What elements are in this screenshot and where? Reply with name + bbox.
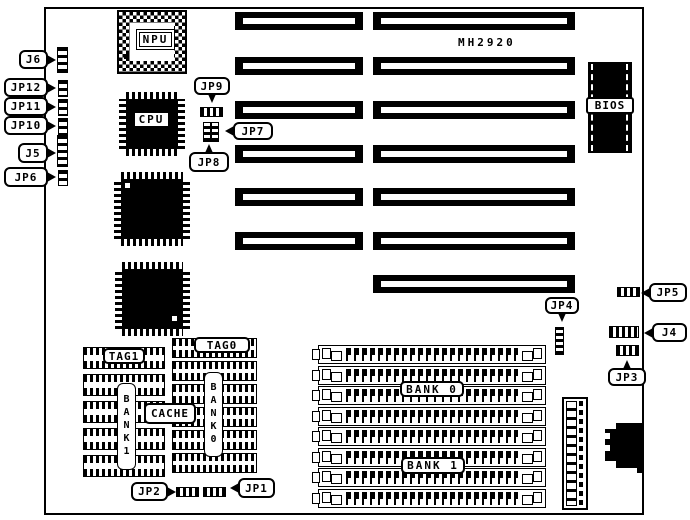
simm-socket-7-hook-right bbox=[522, 474, 533, 484]
jumper-jp7-jp8-b bbox=[211, 122, 219, 142]
isa-slot-long-3-stripe bbox=[381, 107, 567, 113]
qfp1-pins-left bbox=[114, 179, 121, 239]
callout-jp11: JP11 bbox=[4, 97, 48, 116]
simm-socket-8-tab bbox=[312, 493, 320, 504]
simm-socket-1 bbox=[318, 345, 546, 364]
simm-socket-2-hook-left bbox=[331, 372, 342, 382]
isa-slot-long-6-stripe bbox=[381, 238, 567, 244]
callout-j5-pointer bbox=[47, 148, 56, 158]
simm-socket-2-contacts-top bbox=[346, 369, 518, 376]
simm-socket-3-latch-right bbox=[533, 389, 542, 400]
board-model-text: MH2920 bbox=[458, 36, 516, 49]
simm-socket-4-hook-left bbox=[331, 413, 342, 423]
callout-jp10: JP10 bbox=[4, 116, 48, 135]
callout-jp7: JP7 bbox=[233, 122, 273, 140]
npu-label: NPU bbox=[139, 32, 172, 47]
simm-socket-2-hook-right bbox=[522, 372, 533, 382]
cpu-pins-left bbox=[119, 99, 126, 149]
simm-socket-1-latch-right bbox=[533, 348, 542, 359]
simm-socket-8-latch-left bbox=[322, 492, 331, 503]
simm-socket-6-tab bbox=[312, 452, 320, 463]
callout-jp5-text: JP5 bbox=[657, 286, 680, 299]
callout-j4-text: J4 bbox=[662, 326, 677, 339]
isa-slot-short-6-stripe bbox=[243, 238, 355, 244]
callout-jp9-pointer bbox=[208, 94, 216, 103]
edge-connector-jp10 bbox=[58, 118, 68, 135]
callout-jp1-pointer bbox=[230, 483, 239, 493]
isa-slot-short-1-stripe bbox=[243, 18, 355, 24]
callout-jp11-text: JP11 bbox=[11, 100, 42, 113]
edge-connector-jp12 bbox=[58, 80, 68, 97]
jumper-jp3 bbox=[616, 345, 639, 356]
qfp2-pins-right bbox=[183, 269, 190, 329]
callout-j6-pointer bbox=[47, 55, 56, 65]
callout-jp3-pointer bbox=[623, 360, 631, 369]
simm-bank0-label: BANK 0 bbox=[400, 381, 464, 397]
callout-jp9: JP9 bbox=[194, 77, 230, 95]
isa-slot-long-2 bbox=[373, 57, 575, 75]
isa-slot-long-2-stripe bbox=[381, 63, 567, 69]
callout-jp12-pointer bbox=[47, 83, 56, 93]
bios-label: BIOS bbox=[586, 97, 634, 114]
simm-socket-7-latch-right bbox=[533, 471, 542, 482]
edge-connector-j5 bbox=[57, 135, 68, 167]
qfp2-pin1-dot bbox=[172, 316, 177, 321]
qfp2-pins-top bbox=[122, 262, 183, 269]
power-connector-pins bbox=[566, 401, 577, 506]
callout-jp8-text: JP8 bbox=[198, 156, 221, 169]
simm-socket-5-contacts-bottom bbox=[346, 437, 518, 443]
simm-socket-4-contacts-bottom bbox=[346, 417, 518, 423]
qfp2-pins-bottom bbox=[122, 329, 183, 336]
isa-slot-short-2-stripe bbox=[243, 63, 355, 69]
simm-socket-1-contacts-top bbox=[346, 348, 518, 355]
jumper-jp7-jp8-a bbox=[203, 122, 211, 142]
callout-jp7-pointer bbox=[225, 126, 234, 136]
simm-socket-2-latch-right bbox=[533, 369, 542, 380]
edge-connector-j6 bbox=[57, 47, 68, 73]
simm-socket-2-latch-left bbox=[322, 369, 331, 380]
cache-label: CACHE bbox=[144, 403, 196, 424]
power-connector bbox=[562, 397, 588, 510]
callout-jp4: JP4 bbox=[545, 297, 579, 314]
simm-socket-6-hook-right bbox=[522, 454, 533, 464]
callout-jp6-text: JP6 bbox=[15, 171, 38, 184]
npu-pin1-dot bbox=[124, 54, 129, 59]
callout-jp9-text: JP9 bbox=[201, 80, 224, 93]
qfp1-pin1-dot bbox=[125, 183, 130, 188]
isa-slot-long-3 bbox=[373, 101, 575, 119]
jumper-j4 bbox=[609, 326, 639, 338]
jumper-jp4 bbox=[555, 327, 564, 355]
isa-slot-short-2 bbox=[235, 57, 363, 75]
simm-socket-7-tab bbox=[312, 472, 320, 483]
simm-socket-7-latch-left bbox=[322, 471, 331, 482]
simm-socket-7-contacts-bottom bbox=[346, 478, 518, 484]
isa-slot-long-6 bbox=[373, 232, 575, 250]
simm-socket-1-tab bbox=[312, 349, 320, 360]
qfp1-pins-right bbox=[183, 179, 190, 239]
simm-socket-6-latch-left bbox=[322, 451, 331, 462]
simm-socket-3-hook-left bbox=[331, 392, 342, 402]
isa-slot-short-3-stripe bbox=[243, 107, 355, 113]
callout-jp2: JP2 bbox=[131, 482, 168, 501]
simm-socket-3-hook-right bbox=[522, 392, 533, 402]
isa-slot-long-5 bbox=[373, 188, 575, 206]
callout-jp8: JP8 bbox=[189, 152, 229, 172]
simm-socket-8-latch-right bbox=[533, 492, 542, 503]
callout-jp2-text: JP2 bbox=[138, 485, 161, 498]
jumper-jp2 bbox=[176, 487, 199, 497]
callout-jp4-text: JP4 bbox=[551, 299, 574, 312]
isa-slot-short-4 bbox=[235, 145, 363, 163]
callout-j4: J4 bbox=[652, 323, 687, 342]
keyboard-din-connector bbox=[616, 423, 644, 468]
simm-socket-8-contacts-bottom bbox=[346, 499, 518, 505]
simm-socket-1-contacts-bottom bbox=[346, 355, 518, 361]
isa-slot-short-6 bbox=[235, 232, 363, 250]
edge-connector-jp11 bbox=[58, 99, 68, 116]
bank0-vertical-label: BANK0 bbox=[204, 372, 223, 457]
tag1-label: TAG1 bbox=[103, 348, 145, 364]
callout-j5-text: J5 bbox=[25, 147, 40, 160]
jumper-jp5 bbox=[617, 287, 640, 297]
callout-j4-pointer bbox=[644, 328, 653, 338]
callout-jp11-pointer bbox=[47, 102, 56, 112]
isa-slot-short-5-stripe bbox=[243, 194, 355, 200]
jumper-jp1 bbox=[203, 487, 226, 497]
callout-jp2-pointer bbox=[167, 487, 176, 497]
tag0-label: TAG0 bbox=[194, 337, 250, 353]
keyboard-din-connector-step bbox=[637, 468, 644, 473]
callout-j6: J6 bbox=[19, 50, 48, 69]
cpu-pins-bottom bbox=[126, 149, 178, 156]
simm-socket-3-tab bbox=[312, 390, 320, 401]
cpu-pins-top bbox=[126, 92, 178, 99]
callout-jp3: JP3 bbox=[608, 368, 646, 386]
simm-socket-4-contacts-top bbox=[346, 410, 518, 417]
callout-jp5-pointer bbox=[641, 288, 650, 298]
simm-socket-2-tab bbox=[312, 370, 320, 381]
simm-socket-4-tab bbox=[312, 411, 320, 422]
power-connector-contacts bbox=[579, 401, 583, 506]
cpu-label: CPU bbox=[134, 112, 169, 127]
isa-slot-long-1 bbox=[373, 12, 575, 30]
qfp1-pins-bottom bbox=[121, 239, 183, 246]
cpu-pins-right bbox=[178, 99, 185, 149]
simm-socket-4-latch-right bbox=[533, 410, 542, 421]
simm-socket-6-latch-right bbox=[533, 451, 542, 462]
isa-slot-short-3 bbox=[235, 101, 363, 119]
simm-socket-8-contacts-top bbox=[346, 492, 518, 499]
keyboard-din-notch-1 bbox=[605, 433, 610, 439]
simm-socket-8-hook-left bbox=[331, 495, 342, 505]
isa-slot-long-4 bbox=[373, 145, 575, 163]
callout-jp12-text: JP12 bbox=[11, 81, 42, 94]
simm-socket-4-latch-left bbox=[322, 410, 331, 421]
simm-bank1-label: BANK 1 bbox=[401, 457, 465, 474]
simm-socket-1-hook-right bbox=[522, 351, 533, 361]
callout-jp1: JP1 bbox=[238, 478, 275, 498]
jumper-jp9 bbox=[200, 107, 223, 117]
callout-jp5: JP5 bbox=[649, 283, 687, 302]
callout-jp12: JP12 bbox=[4, 78, 48, 97]
bank1-vertical-label: BANK1 bbox=[117, 383, 136, 470]
isa-slot-long-7-stripe bbox=[381, 281, 567, 287]
simm-socket-1-hook-left bbox=[331, 351, 342, 361]
isa-slot-long-5-stripe bbox=[381, 194, 567, 200]
callout-j6-text: J6 bbox=[26, 53, 41, 66]
simm-socket-5-latch-left bbox=[322, 430, 331, 441]
simm-socket-5 bbox=[318, 427, 546, 446]
callout-jp4-pointer bbox=[558, 313, 566, 322]
simm-socket-5-contacts-top bbox=[346, 430, 518, 437]
keyboard-din-notch-2 bbox=[605, 445, 610, 451]
callout-jp7-text: JP7 bbox=[242, 125, 265, 138]
callout-jp8-pointer bbox=[205, 144, 213, 153]
isa-slot-long-1-stripe bbox=[381, 18, 567, 24]
callout-jp1-text: JP1 bbox=[245, 482, 268, 495]
qfp1-pins-top bbox=[121, 172, 183, 179]
qfp1-body bbox=[121, 179, 183, 239]
simm-socket-5-latch-right bbox=[533, 430, 542, 441]
simm-socket-8-hook-right bbox=[522, 495, 533, 505]
isa-slot-short-1 bbox=[235, 12, 363, 30]
simm-socket-5-hook-left bbox=[331, 433, 342, 443]
isa-slot-short-4-stripe bbox=[243, 151, 355, 157]
qfp2-pins-left bbox=[115, 269, 122, 329]
isa-slot-long-4-stripe bbox=[381, 151, 567, 157]
isa-slot-long-7 bbox=[373, 275, 575, 293]
edge-connector-jp6 bbox=[58, 170, 68, 186]
qfp-chip-2 bbox=[115, 262, 190, 336]
callout-jp3-text: JP3 bbox=[616, 371, 639, 384]
simm-socket-6-hook-left bbox=[331, 454, 342, 464]
simm-socket-5-hook-right bbox=[522, 433, 533, 443]
simm-socket-8 bbox=[318, 489, 546, 508]
simm-socket-4 bbox=[318, 407, 546, 426]
simm-socket-1-latch-left bbox=[322, 348, 331, 359]
callout-jp10-pointer bbox=[47, 121, 56, 131]
callout-jp10-text: JP10 bbox=[11, 119, 42, 132]
motherboard-diagram: MH2920 NPU CPU BIOS J6 bbox=[0, 0, 690, 520]
simm-socket-3-latch-left bbox=[322, 389, 331, 400]
simm-socket-5-tab bbox=[312, 431, 320, 442]
simm-socket-7-hook-left bbox=[331, 474, 342, 484]
simm-socket-4-hook-right bbox=[522, 413, 533, 423]
callout-j5: J5 bbox=[18, 143, 48, 163]
isa-slot-short-5 bbox=[235, 188, 363, 206]
callout-jp6-pointer bbox=[47, 172, 56, 182]
callout-jp6: JP6 bbox=[4, 167, 48, 187]
